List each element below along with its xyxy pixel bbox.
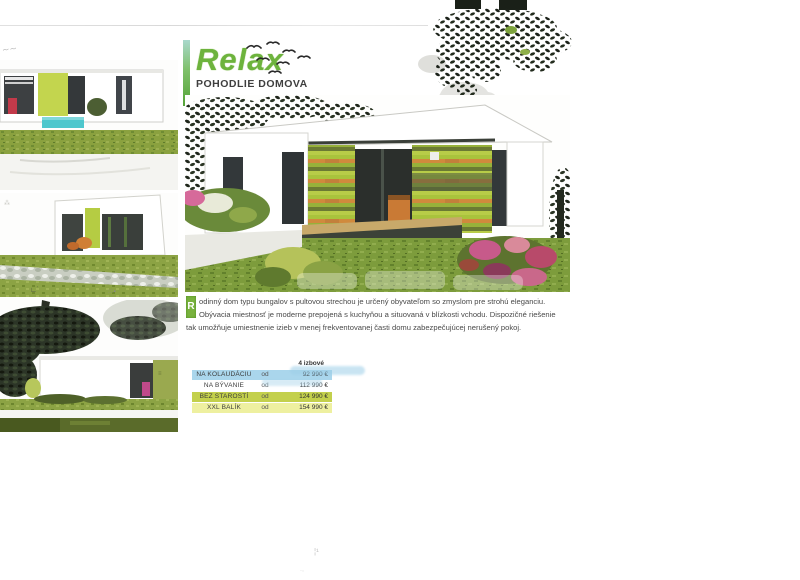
house-render-pool-image xyxy=(0,60,178,190)
scan-edge-line xyxy=(0,25,428,26)
price-row-value: 124 990 € xyxy=(274,393,331,400)
price-row-prefix: od xyxy=(256,393,274,400)
birds-icon xyxy=(243,40,333,80)
price-row-label: NA BÝVANIE xyxy=(192,382,256,389)
price-row-label: NA KOLAUDÁCIU xyxy=(192,371,256,378)
price-row-bez-starosti: BEZ STAROSTÍ od 124 990 € xyxy=(192,392,332,403)
scan-blue-smudge xyxy=(290,366,365,375)
price-row-label: XXL BALÍK xyxy=(192,404,256,411)
scan-speck: ., xyxy=(300,566,304,573)
house-render-corner-image: ⁂ ∟˙ :∴▪ xyxy=(0,193,178,297)
svg-text::∴▪: :∴▪ xyxy=(108,289,116,295)
scan-speck: ¦¹ xyxy=(314,547,319,556)
main-house-render-image xyxy=(185,95,570,292)
price-row-prefix: od xyxy=(256,404,274,411)
tree-foliage-decoration xyxy=(425,0,575,108)
svg-text:∟˙: ∟˙ xyxy=(30,286,39,294)
scan-squiggle-mark: ∼∼ xyxy=(1,43,17,56)
price-row-xxl-balik: XXL BALÍK od 154 990 € xyxy=(192,403,332,414)
price-row-value: 154 990 € xyxy=(274,404,331,411)
price-row-label: BEZ STAROSTÍ xyxy=(192,393,256,400)
description-paragraph: R odinný dom typu bungalov s pultovou st… xyxy=(186,295,564,334)
thumbnail-house-render-pool xyxy=(0,60,178,190)
thumbnail-house-render-corner: ⁂ ∟˙ :∴▪ xyxy=(0,193,178,297)
thumbnail-house-render-wall: ≡ xyxy=(0,300,178,432)
svg-text:≡: ≡ xyxy=(158,371,162,377)
svg-text:⁂: ⁂ xyxy=(4,200,10,207)
drop-cap: R xyxy=(186,296,196,318)
house-render-wall-image: ≡ xyxy=(0,300,178,432)
scan-blue-smudge xyxy=(262,378,322,386)
main-house-render xyxy=(185,95,570,292)
description-text: odinný dom typu bungalov s pultovou stre… xyxy=(186,297,556,332)
